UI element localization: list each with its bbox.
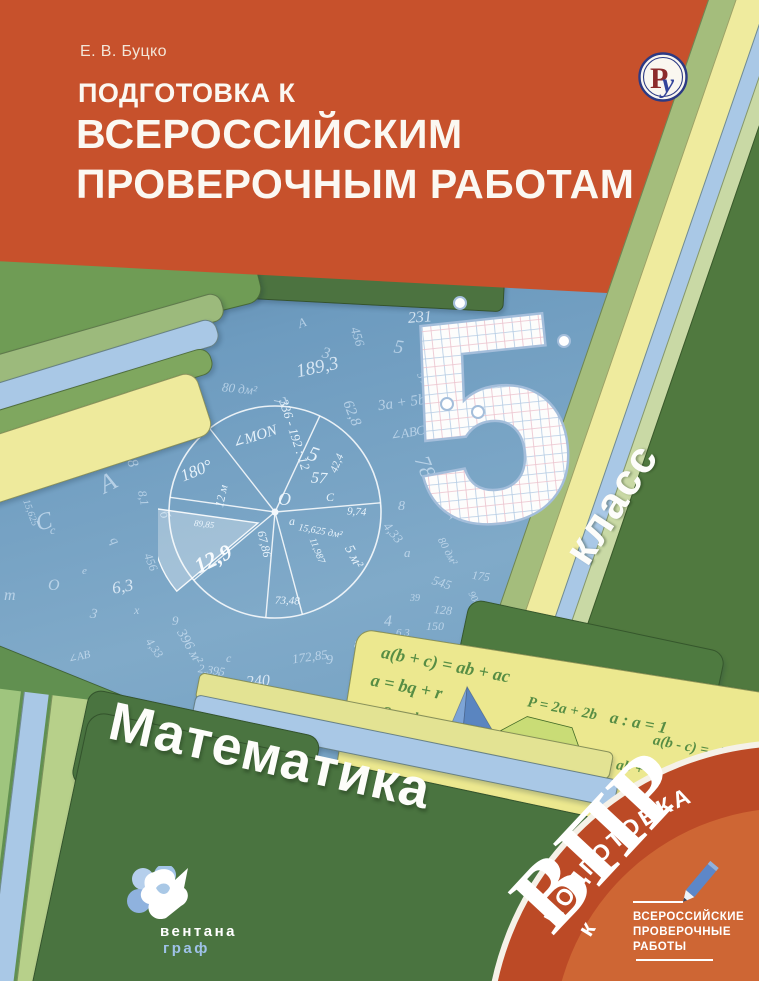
- badge-caption-line2: ПРОВЕРОЧНЫЕ: [633, 926, 731, 938]
- title-line-2: ВСЕРОССИЙСКИМ: [76, 114, 463, 155]
- book-cover: 172,850,80790°89q80 дм²189,3734562315781…: [0, 0, 759, 981]
- publisher-name-line1: вентана: [160, 923, 237, 940]
- title-line-1: ПОДГОТОВКА К: [78, 80, 296, 107]
- vpr-badge: ПОДГОТОВКА к ВПР ВСЕРОССИЙСКИЕ ПРОВЕРОЧН…: [440, 720, 759, 981]
- publisher-mark-logo: Р у: [636, 50, 690, 104]
- pie-center-dot: [272, 509, 279, 516]
- pie-detached-sector: [158, 508, 258, 591]
- formula-text: a = bq + r: [369, 671, 444, 703]
- author-name: Е. В. Буцко: [80, 44, 167, 60]
- ventana-graf-logo: вентана граф: [126, 866, 256, 962]
- title-line-3: ПРОВЕРОЧНЫМ РАБОТАМ: [76, 164, 634, 205]
- publisher-name-line2: граф: [163, 940, 210, 957]
- grade-number: 5: [396, 262, 588, 562]
- badge-caption-line1: ВСЕРОССИЙСКИЕ: [633, 910, 744, 923]
- badge-caption-line3: РАБОТЫ: [633, 941, 686, 953]
- logo-bird-icon: [127, 866, 188, 919]
- mark-letter-u: у: [659, 68, 675, 98]
